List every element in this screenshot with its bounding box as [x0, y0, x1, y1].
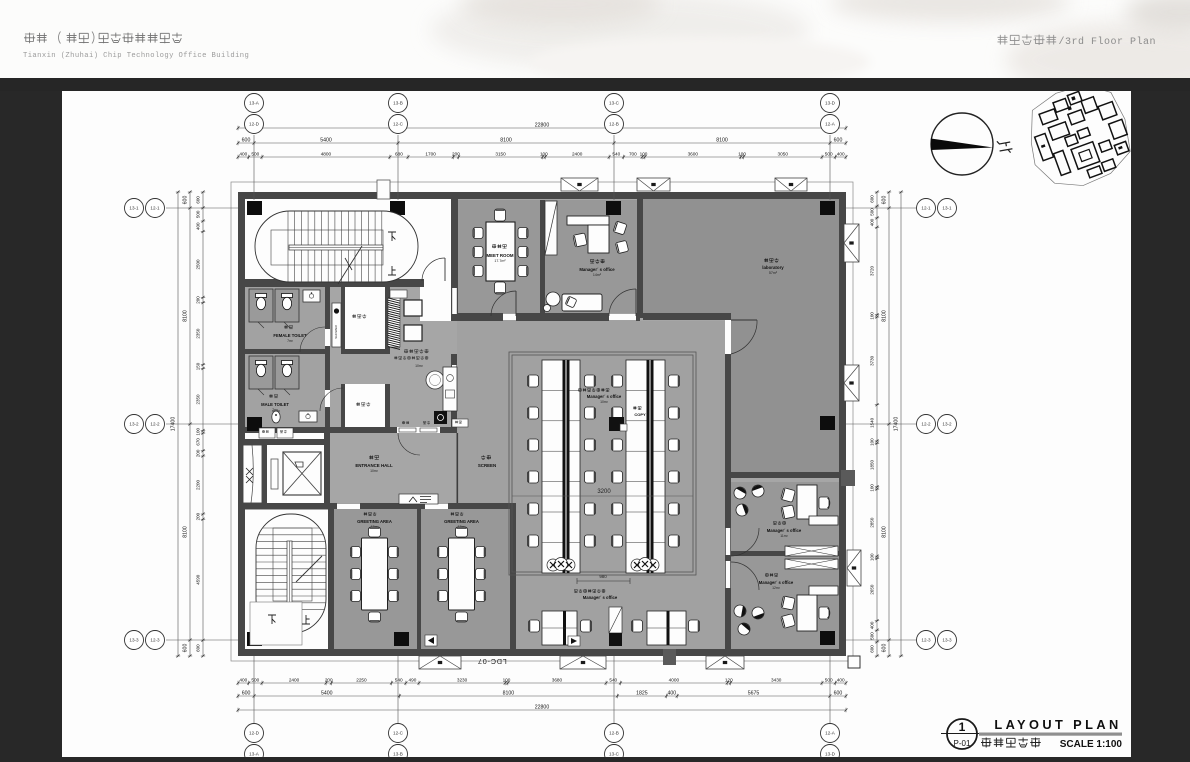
- svg-text:1700: 1700: [425, 152, 436, 157]
- svg-text:400: 400: [239, 678, 247, 683]
- svg-text:600: 600: [183, 644, 189, 653]
- svg-text:2400: 2400: [572, 152, 583, 157]
- svg-text:100: 100: [640, 152, 648, 157]
- svg-text:3050: 3050: [778, 152, 789, 157]
- svg-text:13-3: 13-3: [942, 638, 952, 643]
- svg-text:150: 150: [196, 362, 201, 370]
- svg-text:ENTRANCE HALL: ENTRANCE HALL: [355, 463, 393, 468]
- svg-text:3720: 3720: [870, 265, 875, 276]
- svg-text:500: 500: [251, 152, 259, 157]
- svg-text:13-B: 13-B: [393, 752, 403, 757]
- svg-text:5400: 5400: [321, 691, 333, 697]
- svg-text:12-B: 12-B: [609, 731, 619, 736]
- svg-text:8100: 8100: [882, 310, 888, 322]
- svg-text:13-1: 13-1: [129, 206, 139, 211]
- svg-text:2650: 2650: [870, 584, 875, 595]
- svg-text:700: 700: [629, 152, 637, 157]
- svg-text:11m²: 11m²: [780, 534, 788, 538]
- svg-text:12m²: 12m²: [772, 586, 781, 590]
- svg-text:10m²: 10m²: [415, 364, 424, 368]
- svg-text:GREETING AREA: GREETING AREA: [357, 519, 392, 524]
- svg-text:3680: 3680: [552, 678, 563, 683]
- svg-text:13-D: 13-D: [825, 752, 836, 757]
- svg-text:13-C: 13-C: [609, 752, 620, 757]
- svg-text:8100: 8100: [500, 138, 512, 144]
- svg-text:13-2: 13-2: [942, 422, 952, 427]
- svg-text:400: 400: [837, 678, 845, 683]
- svg-text:13-D: 13-D: [825, 101, 836, 106]
- svg-text:12-B: 12-B: [609, 122, 619, 127]
- svg-text:1850: 1850: [870, 460, 875, 471]
- svg-text:laboratory: laboratory: [762, 265, 784, 270]
- svg-text:600: 600: [834, 138, 843, 144]
- svg-text:400: 400: [667, 691, 676, 697]
- svg-text:12-2: 12-2: [150, 422, 160, 427]
- svg-text:3730: 3730: [870, 355, 875, 366]
- svg-text:8100: 8100: [716, 138, 728, 144]
- svg-text:13-A: 13-A: [249, 752, 260, 757]
- svg-text:400: 400: [870, 621, 875, 629]
- svg-text:100: 100: [870, 312, 875, 320]
- svg-text:500: 500: [251, 678, 259, 683]
- svg-text:3600: 3600: [688, 152, 699, 157]
- svg-text:500: 500: [196, 210, 201, 218]
- svg-text:490: 490: [409, 678, 417, 683]
- svg-text:600: 600: [242, 691, 251, 697]
- svg-text:600: 600: [882, 196, 888, 205]
- svg-text:500: 500: [825, 152, 833, 157]
- svg-text:13-C: 13-C: [609, 101, 620, 106]
- svg-text:22800: 22800: [535, 705, 550, 711]
- svg-text:22800: 22800: [535, 123, 550, 129]
- svg-text:12-1: 12-1: [150, 206, 160, 211]
- svg-text:4000: 4000: [669, 678, 680, 683]
- svg-text:600: 600: [870, 645, 875, 653]
- svg-text:100: 100: [503, 678, 511, 683]
- svg-text:500: 500: [870, 208, 875, 216]
- svg-text:Manager´ s office: Manager´ s office: [583, 595, 618, 600]
- svg-text:12-2: 12-2: [921, 422, 931, 427]
- svg-text:13-2: 13-2: [129, 422, 139, 427]
- svg-text:SCREEN: SCREEN: [478, 463, 496, 468]
- svg-text:17.7m²: 17.7m²: [494, 259, 506, 263]
- svg-text:MALE TOILET: MALE TOILET: [261, 402, 289, 407]
- svg-text:12-A: 12-A: [825, 122, 836, 127]
- svg-text:3200: 3200: [597, 489, 611, 495]
- svg-text:670: 670: [196, 438, 201, 446]
- svg-text:2250: 2250: [356, 678, 367, 683]
- svg-text:LAYOUT PLAN: LAYOUT PLAN: [994, 717, 1121, 732]
- svg-text:8100: 8100: [183, 310, 189, 322]
- svg-text:600: 600: [242, 138, 251, 144]
- svg-text:540: 540: [612, 152, 620, 157]
- svg-text:7m²: 7m²: [287, 339, 294, 343]
- svg-text:13-A: 13-A: [249, 101, 260, 106]
- svg-text:/3rd Floor Plan: /3rd Floor Plan: [1058, 36, 1156, 48]
- svg-text:10m²: 10m²: [600, 400, 609, 404]
- svg-text:600: 600: [870, 195, 875, 203]
- svg-text:600: 600: [882, 644, 888, 653]
- svg-text:100: 100: [870, 484, 875, 492]
- svg-text:3150: 3150: [495, 152, 506, 157]
- svg-text:Manager´ s office: Manager´ s office: [587, 394, 622, 399]
- svg-text:Tianxin (Zhuhai) Chip Technolo: Tianxin (Zhuhai) Chip Technology Office …: [23, 52, 249, 60]
- svg-text:680: 680: [395, 152, 403, 157]
- svg-text:57m²: 57m²: [769, 271, 778, 275]
- svg-text:200: 200: [196, 449, 201, 457]
- svg-text:MEET ROOM: MEET ROOM: [486, 253, 513, 258]
- svg-text:540: 540: [395, 678, 403, 683]
- svg-text:12-3: 12-3: [150, 638, 160, 643]
- svg-text:200: 200: [325, 678, 333, 683]
- svg-text:FEMALE TOILET: FEMALE TOILET: [273, 333, 307, 338]
- svg-text:600: 600: [196, 196, 201, 204]
- svg-text:13-B: 13-B: [393, 101, 403, 106]
- svg-text:100: 100: [540, 152, 548, 157]
- svg-text:500: 500: [870, 632, 875, 640]
- svg-text:600: 600: [834, 691, 843, 697]
- svg-text:12-C: 12-C: [393, 122, 404, 127]
- svg-text:100: 100: [196, 428, 201, 436]
- svg-text:3430: 3430: [771, 678, 782, 683]
- svg-text:500: 500: [825, 678, 833, 683]
- svg-text:1825: 1825: [636, 691, 648, 697]
- svg-text:100: 100: [870, 438, 875, 446]
- svg-text:2500: 2500: [196, 259, 201, 270]
- svg-text:2400: 2400: [289, 678, 300, 683]
- svg-text:4590: 4590: [196, 574, 201, 585]
- svg-text:2350: 2350: [196, 394, 201, 405]
- svg-text:600: 600: [183, 196, 189, 205]
- svg-text:GREETING AREA: GREETING AREA: [444, 519, 479, 524]
- svg-text:200: 200: [452, 152, 460, 157]
- svg-text:12-D: 12-D: [249, 122, 260, 127]
- svg-text:1540: 1540: [870, 417, 875, 428]
- svg-text:100: 100: [870, 553, 875, 561]
- svg-text:13-3: 13-3: [129, 638, 139, 643]
- svg-text:8100: 8100: [503, 691, 515, 697]
- svg-text:1: 1: [959, 720, 966, 734]
- svg-text:Manager´ s office: Manager´ s office: [767, 528, 802, 533]
- svg-text:12-1: 12-1: [921, 206, 931, 211]
- svg-text:5675: 5675: [748, 691, 760, 697]
- svg-text:100: 100: [738, 152, 746, 157]
- svg-text:400: 400: [837, 152, 845, 157]
- svg-text:2200: 2200: [196, 479, 201, 490]
- svg-text:COPY: COPY: [634, 412, 646, 417]
- svg-text:12-3: 12-3: [921, 638, 931, 643]
- svg-text:600: 600: [196, 644, 201, 652]
- svg-text:540: 540: [609, 678, 617, 683]
- svg-text:10m²: 10m²: [370, 469, 379, 473]
- svg-text:2850: 2850: [870, 517, 875, 528]
- svg-text:Manager´ s office: Manager´ s office: [579, 267, 615, 272]
- svg-text:4800: 4800: [321, 152, 332, 157]
- svg-text:12-C: 12-C: [393, 731, 404, 736]
- svg-text:120: 120: [725, 678, 733, 683]
- svg-text:SHOWER: SHOWER: [334, 324, 338, 338]
- svg-text:LDC-07: LDC-07: [477, 657, 507, 666]
- svg-text:200: 200: [196, 296, 201, 304]
- svg-text:8100: 8100: [882, 526, 888, 538]
- svg-text:2350: 2350: [196, 328, 201, 339]
- svg-text:400: 400: [870, 218, 875, 226]
- svg-text:400: 400: [196, 222, 201, 230]
- svg-text:980: 980: [599, 574, 607, 579]
- svg-text:200: 200: [196, 512, 201, 520]
- svg-text:13-1: 13-1: [942, 206, 952, 211]
- svg-text:5400: 5400: [320, 138, 332, 144]
- svg-text:8100: 8100: [183, 526, 189, 538]
- svg-text:400: 400: [239, 152, 247, 157]
- svg-text:SCALE 1:100: SCALE 1:100: [1060, 739, 1123, 750]
- svg-text:P-01: P-01: [954, 739, 971, 748]
- svg-text:12-D: 12-D: [249, 731, 260, 736]
- svg-text:Manager´ s office: Manager´ s office: [759, 580, 794, 585]
- svg-text:12-A: 12-A: [825, 731, 836, 736]
- svg-text:3230: 3230: [457, 678, 468, 683]
- svg-text:14m²: 14m²: [593, 273, 602, 277]
